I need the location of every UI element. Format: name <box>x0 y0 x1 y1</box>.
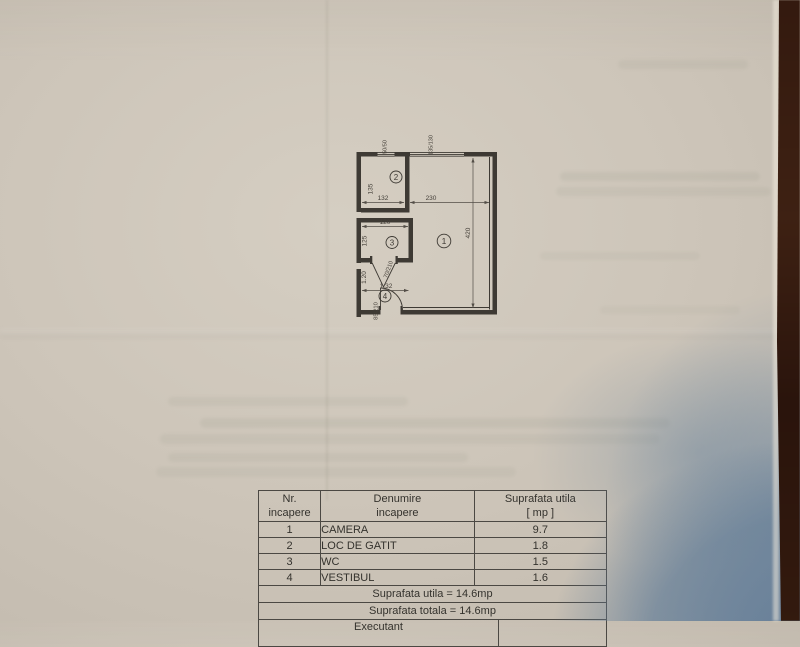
bleed-through-smudge <box>200 418 670 428</box>
cell-name: VESTIBUL <box>321 570 474 586</box>
table-header-row: Nr. incapere Denumire incapere Suprafata… <box>259 491 607 522</box>
cell-name: WC <box>321 554 474 570</box>
dim-room1-height: 420 <box>465 227 472 238</box>
table-row: 2 LOC DE GATIT 1.8 <box>259 538 607 554</box>
table-row: 3 WC 1.5 <box>259 554 607 570</box>
paper-fold-horizontal <box>0 329 800 338</box>
dim-room3-height: 125 <box>362 235 369 246</box>
dim-room3-width: 120 <box>380 219 391 226</box>
wood-table-surface <box>770 0 800 621</box>
cell-name: CAMERA <box>321 522 474 538</box>
photographed-document-page: { "plan": { "room_numbers": { "r1": "1",… <box>0 0 800 621</box>
bleed-through-smudge <box>560 172 760 181</box>
header-suprafata: Suprafata utila [ mp ] <box>474 491 606 522</box>
dim-room4-width: 1.32 <box>380 283 393 290</box>
bleed-through-smudge <box>160 434 660 444</box>
room-number-2: 2 <box>394 173 399 182</box>
bleed-through-smudge <box>600 306 740 314</box>
table-row: 1 CAMERA 9.7 <box>259 522 607 538</box>
cell-area: 9.7 <box>474 522 606 538</box>
bleed-through-smudge <box>168 397 408 406</box>
cell-name: LOC DE GATIT <box>321 538 474 554</box>
cell-nr: 2 <box>259 538 321 554</box>
room-number-3: 3 <box>390 239 395 248</box>
bleed-through-smudge <box>156 467 516 477</box>
cell-nr: 4 <box>259 570 321 586</box>
room-number-4: 4 <box>383 292 388 301</box>
cell-area: 1.6 <box>474 570 606 586</box>
cell-area: 1.5 <box>474 554 606 570</box>
header-denumire: Denumire incapere <box>321 491 474 522</box>
plan-inner-wall-lines <box>403 157 490 310</box>
room-number-1: 1 <box>442 236 447 246</box>
table-summary-row: Suprafata totala = 14.6mp <box>259 603 607 620</box>
bleed-through-smudge <box>618 60 748 69</box>
table-row: 4 VESTIBUL 1.6 <box>259 570 607 586</box>
header-nr-incapere: Nr. incapere <box>259 491 321 522</box>
paper-edge-highlight <box>773 0 779 621</box>
paper-fold-vertical <box>326 0 328 500</box>
summary-suprafata-utila: Suprafata utila = 14.6mp <box>259 586 607 603</box>
dim-room2-height: 135 <box>368 183 375 194</box>
cell-nr: 3 <box>259 554 321 570</box>
plan-dimension-labels: 132 230 420 135 120 125 1.32 1.20 70/210… <box>361 135 472 320</box>
summary-suprafata-totala: Suprafata totala = 14.6mp <box>259 603 607 620</box>
door-size-entry: 85/210 <box>374 302 380 320</box>
executant-label: Executant <box>259 621 498 633</box>
dim-room2-width: 132 <box>378 195 389 202</box>
window-size-right: 135/130 <box>429 135 435 155</box>
door-size-wc: 70/210 <box>383 260 395 279</box>
dim-room4-height: 1.20 <box>361 271 368 284</box>
window-size-left: 50/50 <box>383 140 389 154</box>
dim-room1-width: 230 <box>426 195 437 202</box>
executant-cell: Executant <box>259 620 607 647</box>
bleed-through-smudge <box>556 187 771 196</box>
cell-area: 1.8 <box>474 538 606 554</box>
table-summary-row: Suprafata utila = 14.6mp <box>259 586 607 603</box>
room-area-table: Nr. incapere Denumire incapere Suprafata… <box>258 490 607 647</box>
floor-plan: 132 230 420 135 120 125 1.32 1.20 70/210… <box>340 130 510 325</box>
table-divider <box>498 620 499 646</box>
table-executant-row: Executant <box>259 620 607 647</box>
plan-windows <box>378 152 465 156</box>
bleed-through-smudge <box>168 453 468 462</box>
plan-walls <box>357 152 498 317</box>
cell-nr: 1 <box>259 522 321 538</box>
bleed-through-smudge <box>540 252 700 260</box>
